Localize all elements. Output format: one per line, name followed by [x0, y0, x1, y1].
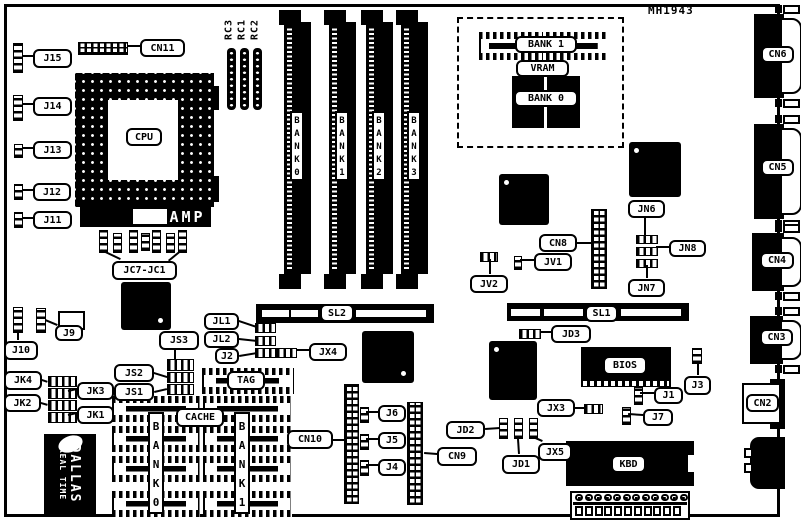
label-vbank1: BANK 1 [515, 36, 577, 53]
jumper-jk4 [48, 376, 77, 387]
jumper-jl2 [255, 336, 276, 346]
rc1-resistor-pack [240, 48, 249, 110]
sl1-slot-window [544, 309, 583, 316]
jumper-jc5 [129, 230, 138, 253]
label-jx5: JX5 [538, 443, 572, 461]
power-pin [661, 494, 669, 501]
power-pin [613, 494, 621, 501]
power-pin [604, 506, 612, 516]
power-pin [624, 506, 632, 516]
callout-pointer [174, 349, 176, 359]
power-pin [575, 506, 583, 516]
j13-connector [14, 144, 23, 158]
jumper-jd2 [499, 418, 508, 439]
qfp-chip [629, 142, 681, 197]
mount-tab [775, 115, 782, 123]
cpu-socket-tab [212, 176, 219, 202]
label-jl2: JL2 [204, 331, 239, 348]
label-jd3: JD3 [551, 325, 591, 343]
cn10-header [344, 384, 359, 504]
label-j10: J10 [4, 341, 38, 360]
label-cn6: CN6 [761, 46, 794, 63]
qfp-chip [362, 331, 414, 383]
label-cn3: CN3 [760, 329, 793, 346]
label-jd2: JD2 [446, 421, 485, 439]
jumper-j5 [360, 434, 369, 450]
qfp-chip [499, 174, 549, 225]
label-j13: J13 [33, 141, 72, 159]
label-j4: J4 [378, 459, 406, 476]
simm-slot-end [324, 274, 346, 289]
label-bank0_simm: BANK0 [290, 111, 304, 181]
label-bank1_simm: BANK1 [335, 111, 349, 181]
label-js3: JS3 [159, 331, 199, 350]
din-notch [744, 448, 753, 458]
label-j7: J7 [643, 409, 673, 426]
rc2-resistor-pack [253, 48, 262, 110]
keyboard-din-connector [750, 437, 785, 489]
jumper-jd1 [514, 418, 523, 439]
label-bios: BIOS [603, 356, 647, 375]
power-pin [651, 494, 659, 501]
rc3-resistor-pack [227, 48, 236, 110]
power-pin [623, 494, 631, 501]
sl2-slot-window [291, 310, 318, 317]
label-jk3: JK3 [77, 382, 114, 400]
jumper-jn6 [636, 235, 658, 244]
callout-pointer [23, 147, 33, 149]
amp-chip-window [133, 209, 167, 224]
sl2-slot-window [356, 310, 426, 317]
label-j5: J5 [378, 432, 406, 449]
power-pin [595, 506, 603, 516]
callout-pointer [297, 349, 309, 351]
sl1-slot-window [511, 309, 540, 316]
pin1-marker [494, 347, 499, 352]
power-pin [585, 494, 593, 501]
qfp-chip [489, 341, 537, 400]
jumper-jd3 [519, 329, 541, 339]
sl2-slot-window [262, 310, 289, 317]
label-tag: TAG [227, 371, 265, 390]
label-cn9: CN9 [437, 447, 477, 466]
label-vbank0: BANK 0 [514, 90, 578, 107]
label-bank2_simm: BANK2 [372, 111, 386, 181]
power-pin [653, 506, 661, 516]
cn8-header [591, 209, 607, 289]
callout-pointer [23, 55, 33, 57]
label-vram: VRAM [516, 60, 569, 77]
label-jk1: JK1 [77, 406, 114, 424]
cn11-header [78, 42, 128, 55]
jumper-j6 [360, 407, 369, 423]
label-jn7: JN7 [628, 279, 665, 297]
callout-pointer [520, 259, 534, 261]
jumper-jk2 [48, 400, 77, 411]
j11-connector [14, 212, 23, 228]
label-bank1_cache: BANK1 [234, 412, 250, 514]
callout-pointer [575, 407, 584, 409]
jumper-jx3 [584, 404, 603, 414]
j10-connector [13, 307, 23, 333]
label-js2: JS2 [114, 364, 154, 382]
callout-pointer [697, 361, 699, 375]
label-bank0_cache: BANK0 [148, 412, 164, 514]
label-jl1: JL1 [204, 313, 239, 330]
callout-pointer [489, 259, 491, 274]
mount-tab [775, 224, 782, 232]
jumper-js3 [167, 359, 194, 371]
label-sl1: SL1 [585, 305, 618, 322]
jumper-jc4 [141, 233, 150, 251]
power-pin [680, 494, 688, 501]
label-jk4: JK4 [4, 371, 42, 390]
mount-tab [783, 5, 800, 14]
jumper-jc1 [178, 230, 187, 253]
jumper-j2 [255, 348, 276, 358]
jumper-jn8 [636, 247, 658, 256]
part-number: MH1943 [648, 4, 718, 20]
simm-slot-end [361, 274, 383, 289]
j14-connector [13, 95, 23, 121]
mount-tab [783, 99, 800, 108]
simm-slot-end [279, 274, 301, 289]
power-pin [614, 506, 622, 516]
jumper-js1 [167, 384, 194, 395]
callout-pointer [577, 242, 591, 244]
label-j2: J2 [215, 348, 239, 364]
simm-slot-end [396, 274, 418, 289]
label-bank3_simm: BANK3 [407, 111, 421, 181]
kbd-notch [688, 455, 695, 472]
mount-tab [783, 292, 800, 301]
label-cn4: CN4 [760, 252, 794, 269]
power-connector-bar [573, 502, 687, 505]
cn9-header [407, 402, 423, 505]
label-cn5: CN5 [761, 159, 794, 176]
label-jc7jc1: JC7-JC1 [112, 261, 177, 280]
power-pin [663, 506, 671, 516]
jumper-js2 [167, 372, 194, 383]
label-jv1: JV1 [534, 253, 572, 271]
pin1-marker [401, 371, 406, 376]
j15-connector [13, 43, 23, 73]
jumper-jc2 [166, 233, 175, 253]
power-pin [673, 506, 681, 516]
power-pin [634, 506, 642, 516]
mount-tab [775, 5, 782, 13]
label-rc3: RC3 [222, 12, 236, 47]
jumper-jc6 [113, 233, 122, 253]
label-js1: JS1 [114, 383, 154, 401]
label-jk2: JK2 [4, 394, 41, 412]
power-pin [604, 494, 612, 501]
callout-pointer [23, 189, 33, 191]
label-j14: J14 [33, 97, 72, 116]
label-rc1: RC1 [235, 12, 249, 47]
label-jx4: JX4 [309, 343, 347, 361]
power-pin [644, 506, 652, 516]
power-pin [670, 494, 678, 501]
callout-pointer [646, 265, 648, 278]
callout-pointer [640, 392, 654, 394]
label-j6: J6 [378, 405, 406, 422]
label-cn10: CN10 [287, 430, 333, 449]
mount-tab [783, 224, 800, 233]
jumper-jl1 [255, 323, 276, 333]
mount-tab [775, 365, 782, 373]
bios-pins [583, 381, 669, 386]
label-j11: J11 [33, 211, 72, 229]
callout-pointer [541, 331, 551, 333]
jumper-jx4 [276, 348, 297, 358]
power-pin [632, 494, 640, 501]
label-cn8: CN8 [539, 234, 577, 252]
mount-tab [783, 115, 800, 124]
amp-label: AMP [165, 206, 210, 227]
label-j12: J12 [33, 183, 71, 201]
label-jd1: JD1 [502, 455, 540, 474]
label-j1: J1 [654, 387, 683, 404]
pin1-marker [634, 148, 639, 153]
label-j3: J3 [684, 376, 711, 395]
motherboard-layout-diagram: DALLASREAL TIMEBANK0BANK1BANK2BANK3BANK0… [0, 0, 801, 527]
mount-tab [775, 307, 782, 315]
pin1-marker [504, 180, 509, 185]
jumper-j7 [622, 407, 631, 425]
label-jn8: JN8 [669, 240, 706, 257]
callout-pointer [23, 217, 33, 219]
label-j9: J9 [55, 325, 83, 341]
mount-tab [775, 99, 782, 107]
callout-pointer [17, 332, 19, 340]
label-rc2: RC2 [248, 12, 262, 47]
power-pin [594, 494, 602, 501]
label-cn11: CN11 [140, 39, 185, 57]
label-jv2: JV2 [470, 275, 508, 293]
callout-pointer [366, 438, 378, 440]
dallas-line2: REAL TIME [59, 448, 68, 500]
sl1-slot-window [621, 309, 681, 316]
jumper-j1 [634, 387, 643, 405]
callout-pointer [644, 217, 646, 235]
callout-pointer [656, 246, 669, 248]
power-pin [585, 506, 593, 516]
mount-tab [783, 365, 800, 374]
label-j15: J15 [33, 49, 72, 68]
label-cn2: CN2 [746, 394, 779, 412]
mount-tab [775, 292, 782, 300]
dallas-brand: DALLAS [68, 445, 82, 504]
callout-pointer [366, 411, 378, 413]
label-cpu: CPU [126, 128, 162, 146]
qfp-chip [121, 282, 171, 330]
label-jn6: JN6 [628, 200, 665, 218]
cpu-socket-tab [212, 86, 219, 110]
callout-pointer [23, 103, 33, 105]
jumper-j4 [360, 460, 369, 476]
callout-pointer [333, 439, 345, 441]
mount-tab [783, 307, 800, 316]
din-notch [744, 463, 753, 473]
pin1-marker [158, 318, 163, 323]
callout-pointer [128, 45, 140, 47]
callout-pointer [366, 464, 378, 466]
label-sl2: SL2 [320, 304, 354, 322]
j12-connector [14, 184, 23, 200]
label-kbd: KBD [611, 455, 646, 473]
label-jx3: JX3 [537, 399, 575, 417]
power-pin [575, 494, 583, 501]
power-pin [642, 494, 650, 501]
jumper-jc3 [152, 230, 161, 253]
label-cache: CACHE [176, 408, 224, 427]
